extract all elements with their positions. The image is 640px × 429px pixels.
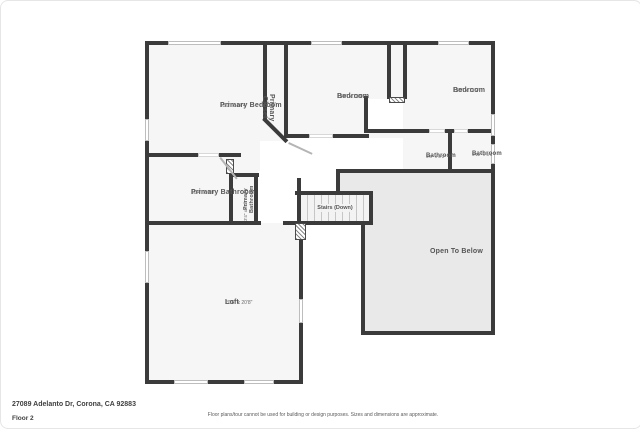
corridor-fill bbox=[260, 141, 297, 221]
window-right-1 bbox=[491, 114, 495, 136]
room-name: Open To Below bbox=[430, 248, 483, 255]
wall-closet-right bbox=[284, 41, 288, 138]
room-dims: 5'11" x 5'1" bbox=[472, 152, 494, 157]
door-opening-primary-bedroom bbox=[198, 153, 219, 157]
window-top-1 bbox=[168, 41, 221, 45]
room-dims: 13'4" x 13'0" bbox=[337, 94, 364, 100]
open-to-below-fill-lower bbox=[365, 221, 491, 331]
wall-stairs-right bbox=[369, 191, 373, 221]
room-dims: 5'8" x 5'1" bbox=[426, 154, 446, 159]
window-loft-bottom-2 bbox=[244, 380, 274, 384]
door-opening-bathroom1 bbox=[429, 129, 445, 133]
wall-bedroom2-left bbox=[403, 41, 407, 99]
door-hatch-loft bbox=[295, 223, 306, 240]
room-dims: 20'6" x 20'8" bbox=[225, 300, 252, 306]
room-name: Primary Bathroom bbox=[243, 176, 255, 222]
wall-bathrooms-bottom bbox=[336, 169, 495, 173]
room-dims: 13'9" x 11'2" bbox=[453, 88, 480, 94]
bath-hall-fill bbox=[336, 138, 403, 169]
window-loft-bottom-1 bbox=[174, 380, 208, 384]
nook-fill bbox=[368, 99, 403, 129]
door-hatch-bedroom2 bbox=[389, 97, 405, 103]
wall-nook-left bbox=[364, 96, 368, 133]
window-loft-right bbox=[299, 299, 303, 323]
wall-open-below-left bbox=[361, 221, 365, 335]
window-left-2 bbox=[145, 251, 149, 283]
room-dims: 15'1" x 14'4" bbox=[220, 103, 247, 109]
wall-loft-bottom bbox=[145, 380, 303, 384]
wall-small-bath-left bbox=[229, 174, 233, 225]
property-address: 27089 Adelanto Dr, Corona, CA 92883 bbox=[12, 401, 136, 408]
room-dims: 10'4" x 9'0" bbox=[191, 190, 216, 196]
wall-outer-right bbox=[491, 41, 495, 335]
room-name: Primary Closet bbox=[261, 94, 275, 121]
wall-outer-left bbox=[145, 41, 149, 384]
wall-stairs-top bbox=[295, 191, 373, 195]
floor-plan-page: Primary Bedroom 15'1" x 14'4" Primary Cl… bbox=[0, 0, 640, 429]
window-left-1 bbox=[145, 119, 149, 141]
window-top-2 bbox=[311, 41, 342, 45]
loft-fill bbox=[147, 223, 299, 380]
window-top-3 bbox=[438, 41, 469, 45]
wall-open-below-bottom bbox=[361, 331, 495, 335]
room-label-stairs: Stairs (Down) bbox=[315, 204, 354, 212]
floor-label: Floor 2 bbox=[12, 415, 34, 422]
wall-bedroom1-right bbox=[387, 41, 391, 99]
disclaimer-text: Floor plans/tour cannot be used for buil… bbox=[208, 412, 438, 418]
wall-primary-bedroom-bottom bbox=[145, 153, 241, 157]
door-opening-bathroom2 bbox=[454, 129, 468, 133]
door-opening-bedroom1 bbox=[309, 134, 333, 138]
wall-stairs-left bbox=[297, 178, 301, 221]
